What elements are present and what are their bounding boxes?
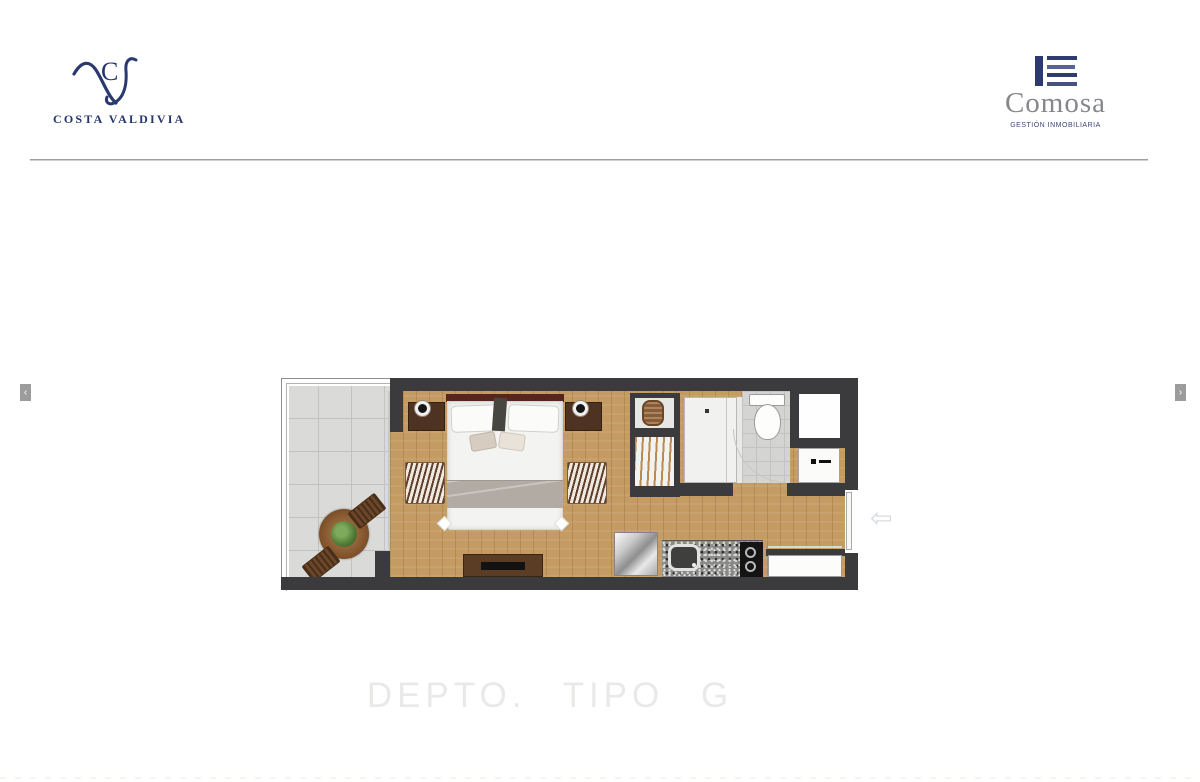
wall-stub xyxy=(390,391,403,432)
page-bottom-border xyxy=(0,777,1200,779)
wall-stub xyxy=(375,551,390,577)
pan-arrow-icon[interactable]: ⇦ xyxy=(870,505,893,532)
wall-right xyxy=(845,378,858,590)
cooktop-burner xyxy=(745,561,756,572)
comosa-logo: Comosa GESTIÓN INMOBILIARIA xyxy=(998,56,1113,129)
shower xyxy=(684,397,737,483)
sink-faucet xyxy=(692,563,696,567)
shower-drain xyxy=(705,409,709,413)
counter-edge xyxy=(768,546,842,548)
tv xyxy=(481,562,525,570)
side-counter xyxy=(768,555,842,577)
cooktop-burner xyxy=(745,547,756,558)
plan-title: DEPTO. TIPO G xyxy=(285,676,815,716)
bed-throw xyxy=(492,398,507,432)
comosa-name: Comosa xyxy=(1005,89,1106,118)
closet-basket xyxy=(642,400,664,426)
comosa-tagline: GESTIÓN INMOBILIARIA xyxy=(1010,122,1101,129)
comosa-stripe xyxy=(1047,82,1077,86)
vanity-partition xyxy=(790,440,845,448)
bedside-rug xyxy=(405,462,445,504)
wall-top xyxy=(390,378,858,391)
bed-cushion xyxy=(498,431,526,451)
shower-glass xyxy=(726,397,727,483)
costa-valdivia-wave-icon: C xyxy=(70,54,150,108)
comosa-stripe xyxy=(1047,65,1075,69)
header-divider xyxy=(30,159,1148,161)
bed-pillow xyxy=(508,404,560,433)
carousel-prev-button[interactable]: ‹ xyxy=(20,384,31,401)
comosa-flag-icon xyxy=(1035,56,1077,86)
comosa-stripe xyxy=(1047,73,1077,77)
lamp-icon xyxy=(573,401,588,416)
bed-blanket xyxy=(447,480,563,508)
patio-plant xyxy=(331,521,357,547)
lamp-icon xyxy=(415,401,430,416)
comosa-flag-stripes xyxy=(1047,56,1077,86)
balcony xyxy=(281,378,390,590)
vanity-faucet-handle xyxy=(819,460,831,463)
costa-valdivia-monogram: C xyxy=(101,57,118,86)
sink-vanity xyxy=(798,448,840,483)
bathroom-wall xyxy=(680,483,733,496)
storage-cabinet xyxy=(799,394,840,438)
costa-valdivia-name: COSTA VALDIVIA xyxy=(53,112,186,127)
closet-slatted-shelves xyxy=(635,437,674,486)
floor-plan xyxy=(281,378,858,590)
bathroom-wall xyxy=(787,483,845,496)
header: C COSTA VALDIVIA Comosa GESTIÓN INMOBILI… xyxy=(0,0,1200,165)
bedside-rug xyxy=(567,462,607,504)
carousel-next-button[interactable]: › xyxy=(1175,384,1186,401)
refrigerator xyxy=(614,532,658,576)
costa-valdivia-logo: C COSTA VALDIVIA xyxy=(53,52,203,132)
comosa-stripe xyxy=(1047,56,1077,60)
wall-bottom xyxy=(281,577,858,590)
entrance-door-leaf xyxy=(846,492,852,550)
vanity-faucet xyxy=(811,459,816,464)
kitchen-sink xyxy=(668,544,700,571)
comosa-flag-bar xyxy=(1035,56,1043,86)
